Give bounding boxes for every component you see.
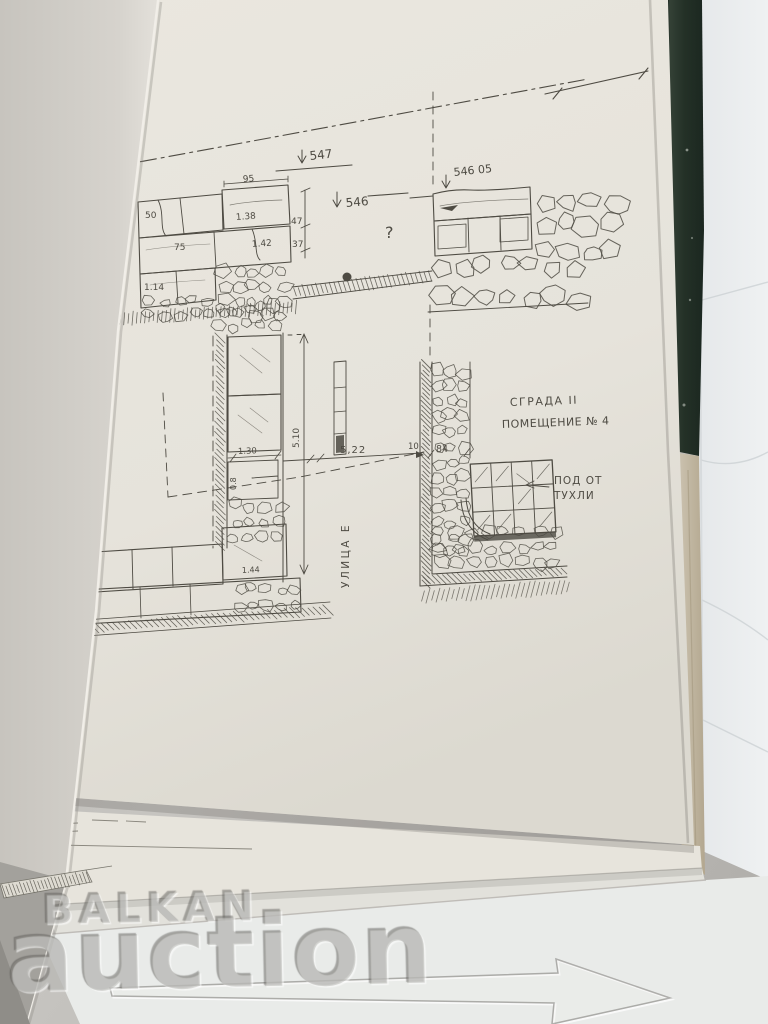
dim-10: 10 — [408, 442, 419, 452]
elevation-547: 547 — [309, 147, 333, 163]
dim-522: 5,22 — [340, 445, 366, 456]
dim-144: 1.44 — [242, 565, 260, 575]
watermark-brand-bottom: auction — [5, 890, 434, 1016]
dim-142: 1.42 — [252, 239, 273, 250]
dim-95: 95 — [243, 174, 255, 185]
label-floor-2: ТУХЛИ — [553, 490, 595, 502]
dim-37: 37 — [292, 240, 303, 250]
label-floor-1: ПОД ОТ — [554, 475, 602, 487]
dim-114: 1.14 — [144, 283, 164, 293]
dim-50: 50 — [145, 211, 157, 221]
find-spot-dot — [343, 273, 352, 282]
label-building: СГРАДА II — [510, 394, 579, 409]
label-street: УЛИЦА Е — [340, 523, 352, 588]
dim-47: 47 — [291, 217, 302, 227]
question-mark: ? — [385, 223, 394, 242]
dim-08: 0.8 — [229, 477, 238, 490]
dim-75: 75 — [174, 243, 185, 253]
dim-84: 84 — [436, 444, 448, 455]
dim-130: 1.30 — [238, 446, 257, 457]
dim-138: 1.38 — [236, 212, 257, 223]
book-photo: 547 546 546 05 ? 95 50 1.38 47 37 75 1.4… — [0, 0, 768, 1024]
elevation-546: 546 — [345, 194, 369, 210]
dim-510: 5.10 — [292, 428, 302, 448]
photo-canvas: 547 546 546 05 ? 95 50 1.38 47 37 75 1.4… — [0, 0, 768, 1024]
